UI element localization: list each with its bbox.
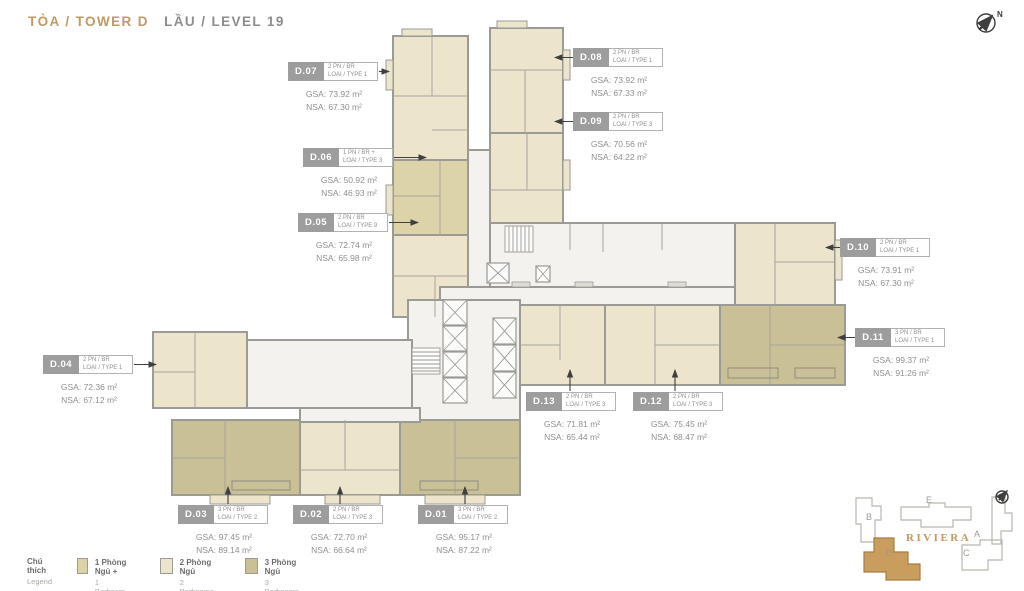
- minimap-label-d: D: [886, 548, 893, 558]
- legend-item-2br: 2 Phòng Ngủ 2 Bedrooms: [160, 558, 217, 591]
- unit-id-badge: D.02: [293, 505, 329, 524]
- legend-title-vi: Chú thích: [27, 557, 52, 575]
- unit-nsa: NSA: 67.12 m²: [43, 395, 135, 405]
- unit-id-badge: D.09: [573, 112, 609, 131]
- unit-id-badge: D.03: [178, 505, 214, 524]
- unit-id-badge: D.11: [855, 328, 891, 347]
- minimap-building-a: [992, 497, 1012, 544]
- unit-d07-shape: [393, 36, 468, 160]
- unit-id-badge: D.08: [573, 48, 609, 67]
- unit-id-badge: D.01: [418, 505, 454, 524]
- unit-id-badge: D.10: [840, 238, 876, 257]
- unit-gsa: GSA: 73.91 m²: [840, 265, 932, 275]
- unit-gsa: GSA: 99.37 m²: [855, 355, 947, 365]
- minimap-label-e: E: [926, 495, 932, 505]
- unit-d02-shape: [300, 420, 400, 495]
- unit-type-badge: 1 PN / BR +LOẠI / TYPE 3: [339, 148, 393, 167]
- compass-north-label: N: [997, 10, 1003, 19]
- minimap-label-c: C: [963, 548, 970, 558]
- unit-d06-shape: [393, 160, 468, 235]
- legend-item-3br: 3 Phòng Ngủ 3 Bedrooms: [245, 558, 302, 591]
- unit-gsa: GSA: 95.17 m²: [418, 532, 510, 542]
- unit-label-d10: D.10 2 PN / BRLOẠI / TYPE 1 GSA: 73.91 m…: [840, 238, 932, 288]
- unit-label-d06: D.06 1 PN / BR +LOẠI / TYPE 3 GSA: 50.92…: [303, 148, 395, 198]
- minimap-building-d-highlighted: [864, 538, 920, 580]
- unit-nsa: NSA: 64.22 m²: [573, 152, 665, 162]
- unit-id-badge: D.07: [288, 62, 324, 81]
- unit-gsa: GSA: 50.92 m²: [303, 175, 395, 185]
- page-title: TÒA / TOWER D LẦU / LEVEL 19: [28, 14, 285, 29]
- site-minimap: B E A C D RIVIERA: [856, 491, 1012, 580]
- unit-d04-shape: [153, 332, 247, 408]
- unit-nsa: NSA: 65.44 m²: [526, 432, 618, 442]
- legend-swatch-2br: [160, 558, 173, 574]
- unit-type-badge: 2 PN / BRLOẠI / TYPE 1: [324, 62, 378, 81]
- unit-label-d13: D.13 2 PN / BRLOẠI / TYPE 3 GSA: 71.81 m…: [526, 392, 618, 442]
- minimap-label-a: A: [974, 529, 980, 539]
- unit-label-d04: D.04 2 PN / BRLOẠI / TYPE 1 GSA: 72.36 m…: [43, 355, 135, 405]
- legend-item-1br: 1 Phòng Ngủ + 1 Bedroom +: [77, 558, 130, 591]
- unit-d10-shape: [735, 223, 835, 305]
- unit-nsa: NSA: 65.98 m²: [298, 253, 390, 263]
- unit-type-badge: 2 PN / BRLOẠI / TYPE 3: [329, 505, 383, 524]
- minimap-building-e: [901, 503, 971, 527]
- unit-gsa: GSA: 75.45 m²: [633, 419, 725, 429]
- tower-title: TÒA / TOWER D: [28, 14, 149, 29]
- unit-type-badge: 3 PN / BRLOẠI / TYPE 1: [891, 328, 945, 347]
- unit-type-badge: 2 PN / BRLOẠI / TYPE 9: [334, 213, 388, 232]
- unit-gsa: GSA: 73.92 m²: [288, 89, 380, 99]
- unit-id-badge: D.12: [633, 392, 669, 411]
- unit-label-d03: D.03 3 PN / BRLOẠI / TYPE 2 GSA: 97.45 m…: [178, 505, 270, 555]
- unit-nsa: NSA: 89.14 m²: [178, 545, 270, 555]
- unit-type-badge: 2 PN / BRLOẠI / TYPE 1: [609, 48, 663, 67]
- unit-label-d09: D.09 2 PN / BRLOẠI / TYPE 3 GSA: 70.56 m…: [573, 112, 665, 162]
- legend-swatch-3br: [245, 558, 258, 574]
- unit-type-badge: 3 PN / BRLOẠI / TYPE 2: [214, 505, 268, 524]
- unit-id-badge: D.04: [43, 355, 79, 374]
- unit-nsa: NSA: 68.47 m²: [633, 432, 725, 442]
- unit-gsa: GSA: 72.70 m²: [293, 532, 385, 542]
- unit-label-d07: D.07 2 PN / BRLOẠI / TYPE 1 GSA: 73.92 m…: [288, 62, 380, 112]
- level-title: LẦU / LEVEL 19: [164, 14, 285, 29]
- unit-type-badge: 2 PN / BRLOẠI / TYPE 3: [562, 392, 616, 411]
- unit-id-badge: D.06: [303, 148, 339, 167]
- unit-nsa: NSA: 66.64 m²: [293, 545, 385, 555]
- unit-label-d12: D.12 2 PN / BRLOẠI / TYPE 3 GSA: 75.45 m…: [633, 392, 725, 442]
- unit-label-d11: D.11 3 PN / BRLOẠI / TYPE 1 GSA: 99.37 m…: [855, 328, 947, 378]
- legend-swatch-1br: [77, 558, 88, 574]
- unit-gsa: GSA: 70.56 m²: [573, 139, 665, 149]
- legend-title-en: Legend: [27, 577, 52, 586]
- unit-type-badge: 3 PN / BRLOẠI / TYPE 2: [454, 505, 508, 524]
- unit-type-badge: 2 PN / BRLOẠI / TYPE 3: [609, 112, 663, 131]
- unit-nsa: NSA: 46.93 m²: [303, 188, 395, 198]
- minimap-label-b: B: [866, 512, 872, 522]
- unit-gsa: GSA: 73.92 m²: [573, 75, 665, 85]
- unit-label-d02: D.02 2 PN / BRLOẠI / TYPE 3 GSA: 72.70 m…: [293, 505, 385, 555]
- unit-gsa: GSA: 71.81 m²: [526, 419, 618, 429]
- unit-nsa: NSA: 87.22 m²: [418, 545, 510, 555]
- unit-type-badge: 2 PN / BRLOẠI / TYPE 3: [669, 392, 723, 411]
- unit-id-badge: D.13: [526, 392, 562, 411]
- unit-nsa: NSA: 67.30 m²: [840, 278, 932, 288]
- unit-label-d01: D.01 3 PN / BRLOẠI / TYPE 2 GSA: 95.17 m…: [418, 505, 510, 555]
- unit-nsa: NSA: 67.30 m²: [288, 102, 380, 112]
- unit-type-badge: 2 PN / BRLOẠI / TYPE 1: [876, 238, 930, 257]
- unit-gsa: GSA: 97.45 m²: [178, 532, 270, 542]
- unit-nsa: NSA: 67.33 m²: [573, 88, 665, 98]
- compass-north-icon: N: [977, 10, 1003, 32]
- floorplan-drawing: N B E A C D RIVIERA: [0, 0, 1024, 591]
- unit-label-d05: D.05 2 PN / BRLOẠI / TYPE 9 GSA: 72.74 m…: [298, 213, 390, 263]
- unit-id-badge: D.05: [298, 213, 334, 232]
- unit-d08-shape: [490, 28, 563, 133]
- unit-gsa: GSA: 72.74 m²: [298, 240, 390, 250]
- floorplan-page: N B E A C D RIVIERA TÒA / TOWER D LẦU / …: [0, 0, 1024, 591]
- unit-gsa: GSA: 72.36 m²: [43, 382, 135, 392]
- unit-type-badge: 2 PN / BRLOẠI / TYPE 1: [79, 355, 133, 374]
- project-name: RIVIERA: [906, 532, 971, 544]
- unit-nsa: NSA: 91.26 m²: [855, 368, 947, 378]
- unit-label-d08: D.08 2 PN / BRLOẠI / TYPE 1 GSA: 73.92 m…: [573, 48, 665, 98]
